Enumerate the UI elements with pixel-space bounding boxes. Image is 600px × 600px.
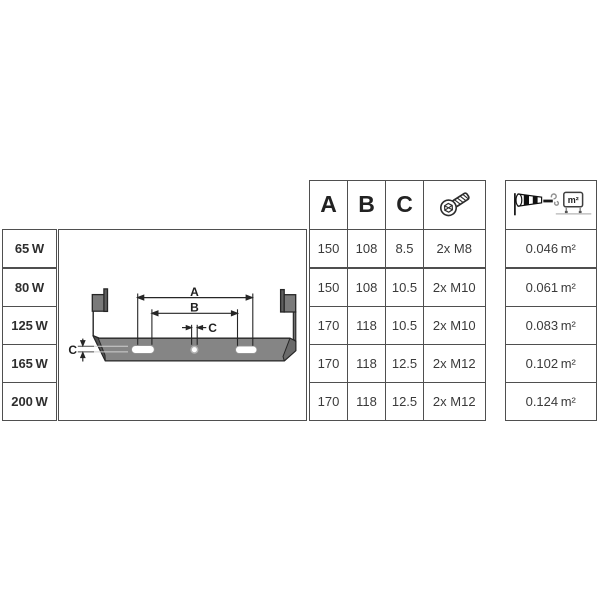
svg-text:m²: m² xyxy=(568,195,579,205)
svg-text:A: A xyxy=(190,285,199,299)
svg-text:C: C xyxy=(68,343,77,357)
svg-text:C: C xyxy=(208,321,217,335)
svg-text:B: B xyxy=(190,300,199,314)
